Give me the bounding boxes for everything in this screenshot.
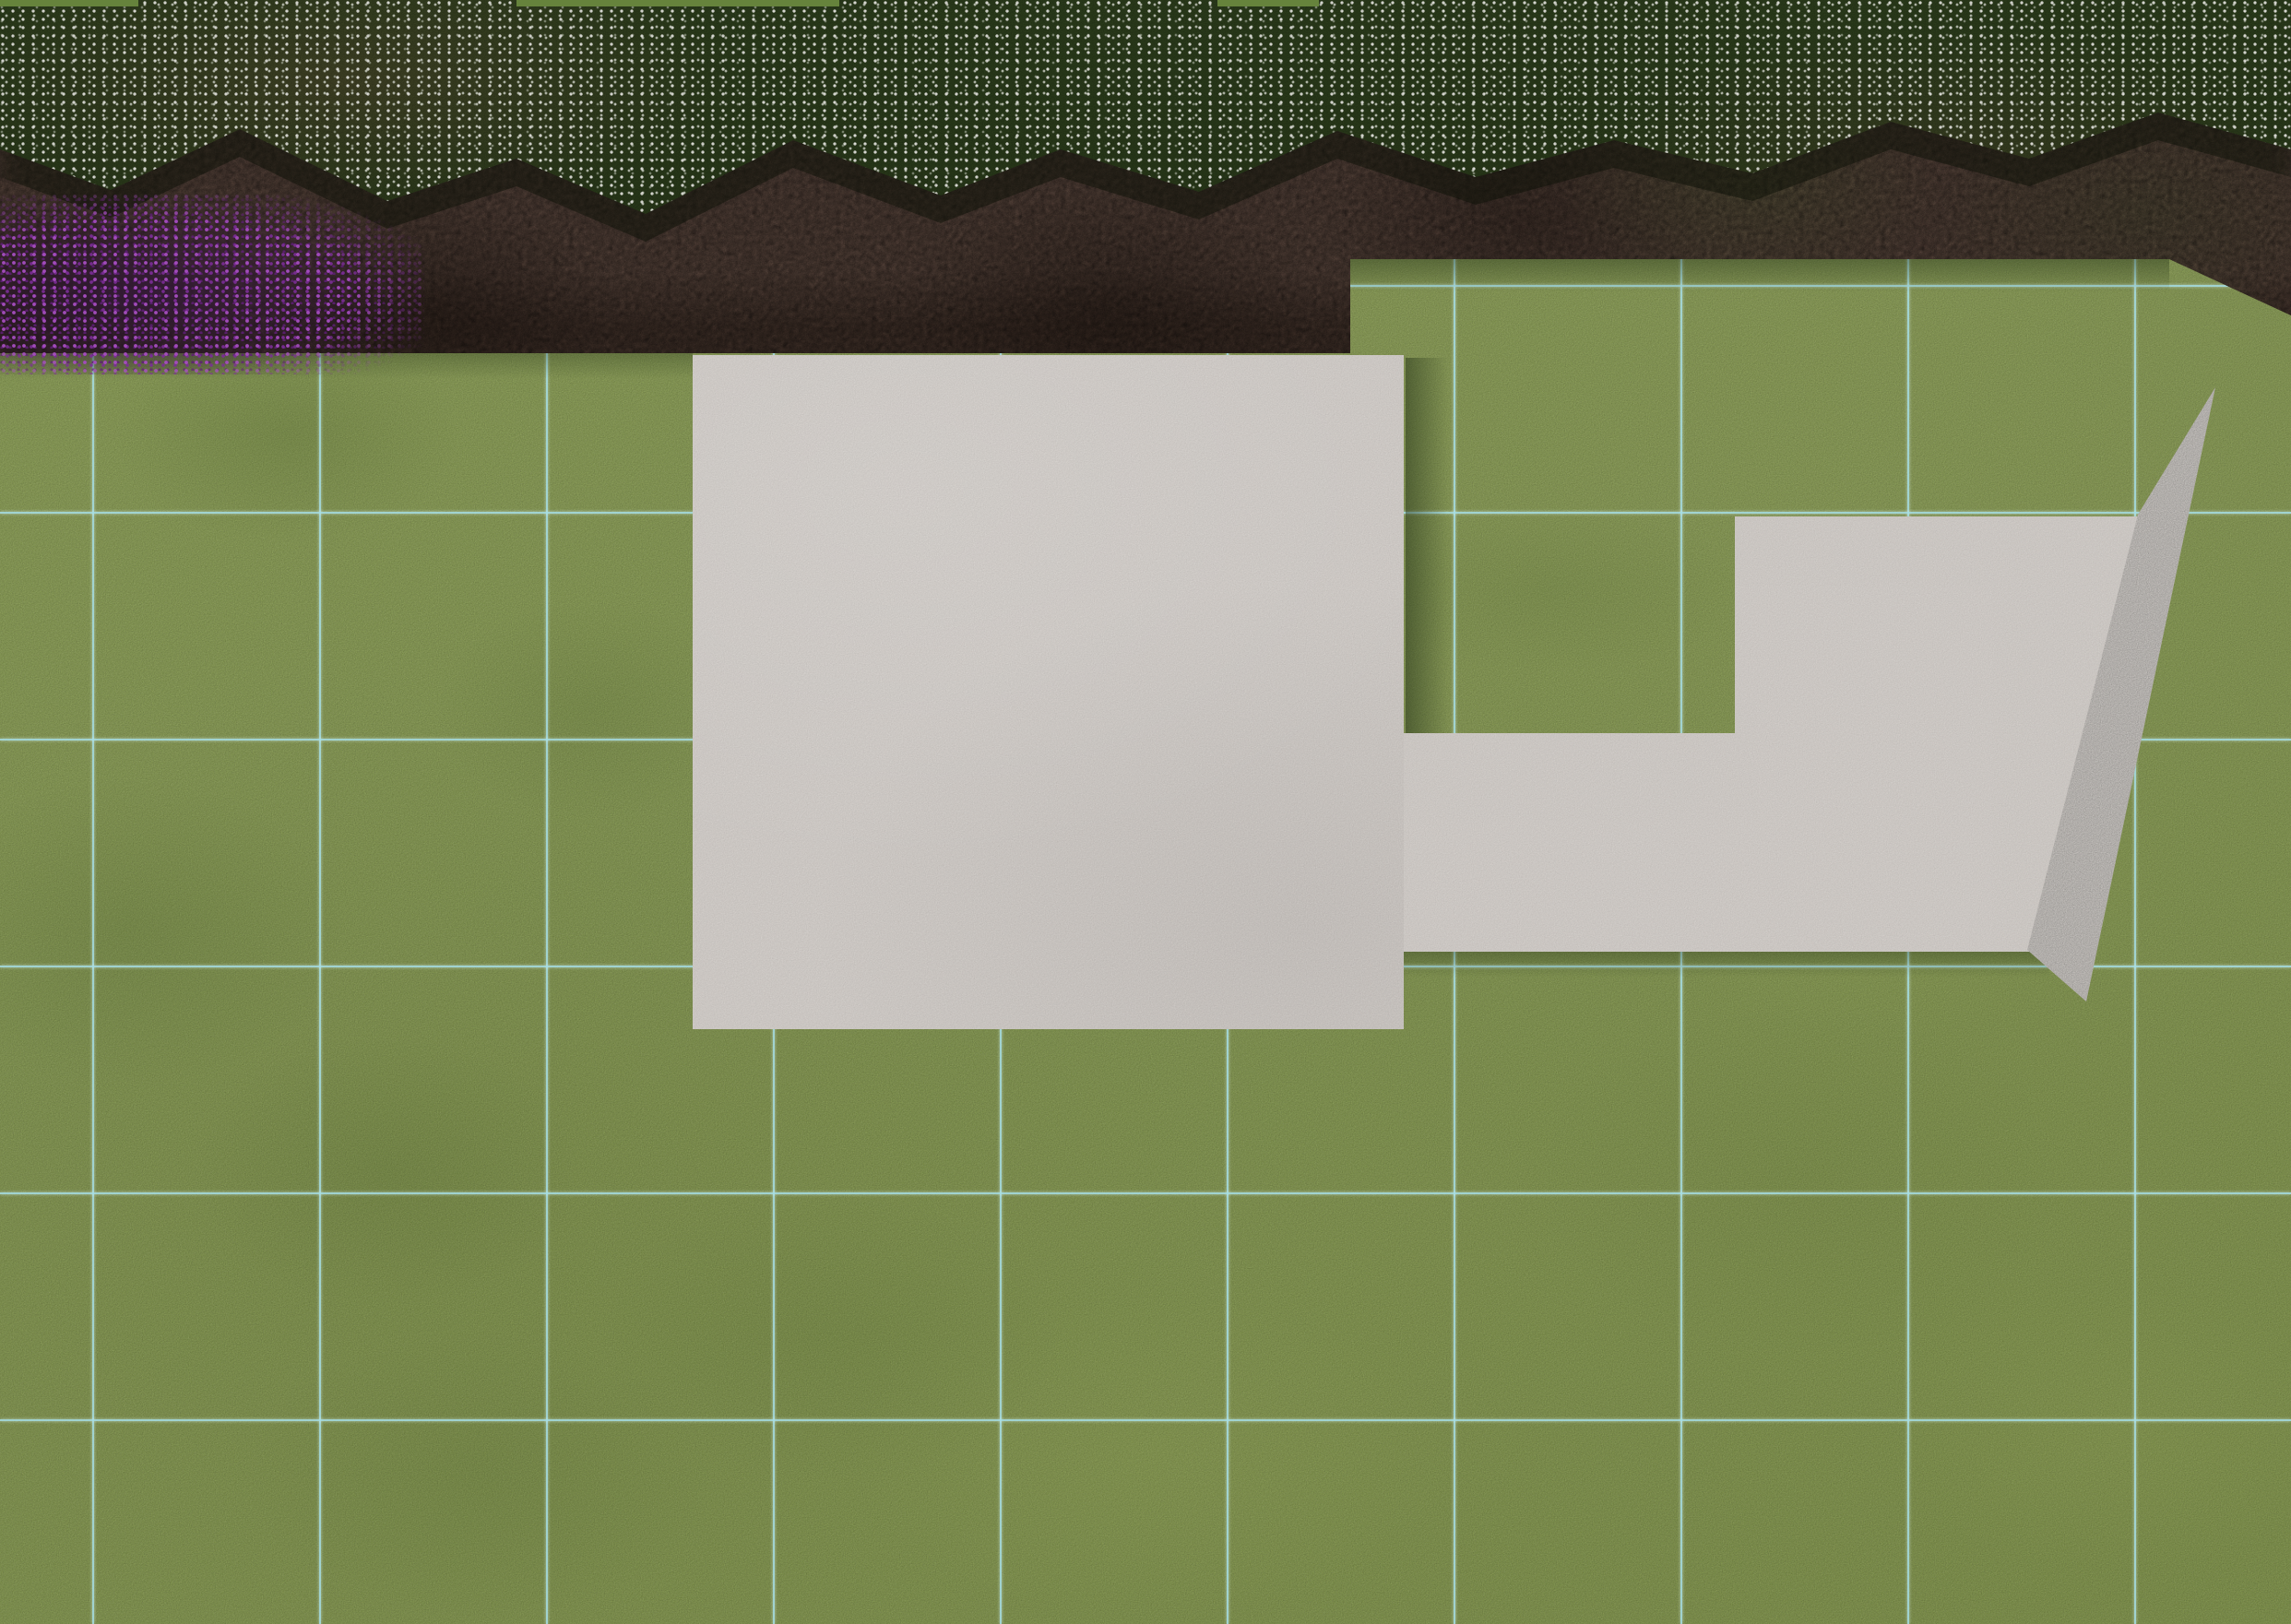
garden-canvas[interactable]	[0, 0, 2291, 1624]
vector-layer	[0, 0, 2291, 1624]
